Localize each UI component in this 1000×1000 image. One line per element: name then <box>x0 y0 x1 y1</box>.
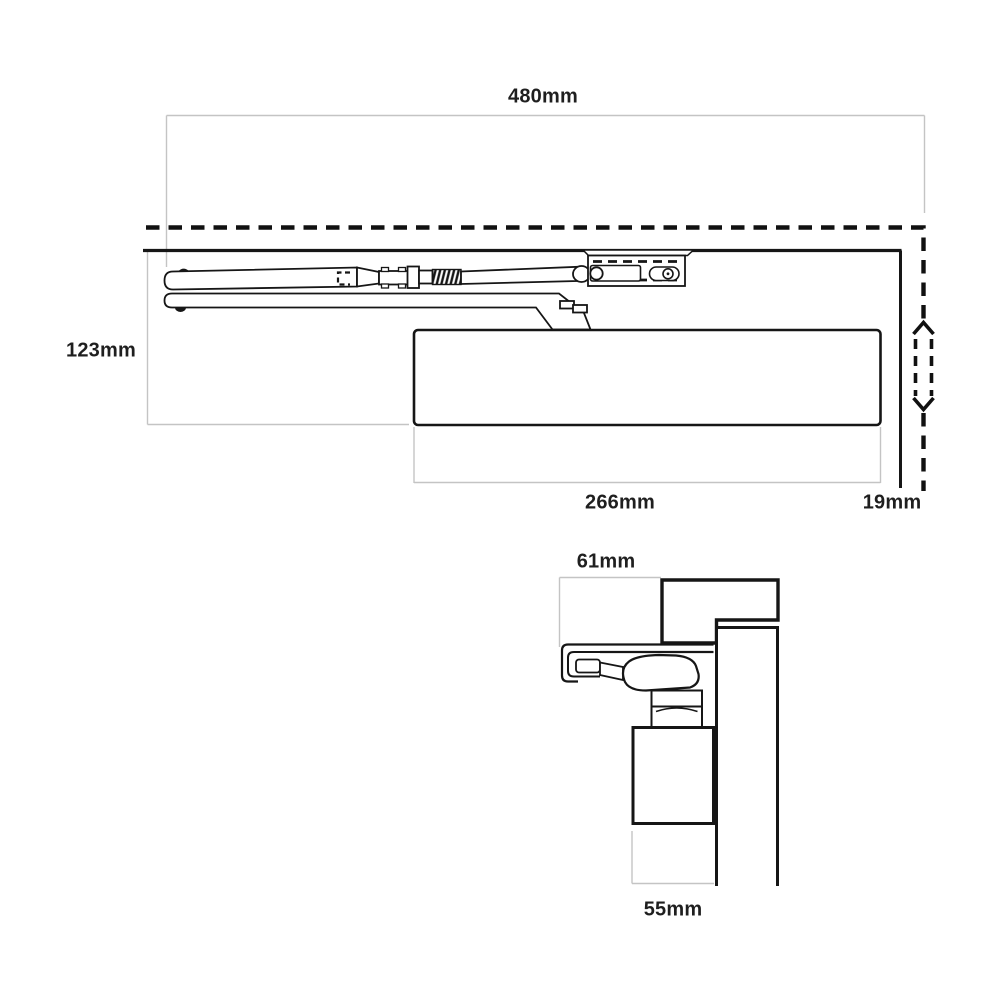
dim-overall-width-lines <box>167 116 925 268</box>
link-notch-br <box>399 284 406 288</box>
forearm-assembly <box>165 266 591 290</box>
dim-label-overall-width: 480mm <box>508 86 578 109</box>
forearm-bar <box>165 268 358 290</box>
arm-boss <box>623 655 699 691</box>
track-slider-block <box>576 660 600 673</box>
rod-collar <box>419 271 433 284</box>
forearm-rivet-bump <box>178 269 189 272</box>
screw-center-dot <box>667 272 670 275</box>
pinion-step-1 <box>560 301 574 309</box>
closer-body-side <box>633 728 714 824</box>
door-closer-dimension-drawing <box>0 0 1000 1000</box>
adjust-nut <box>408 267 420 289</box>
link-notch-tl <box>382 268 389 272</box>
hidden-slot-bracket <box>338 273 350 285</box>
diagram-canvas: 480mm 123mm 266mm 19mm 61mm 55mm <box>0 0 1000 1000</box>
arrow-up-chevron <box>914 323 934 335</box>
arm-rivet-bump <box>175 308 186 313</box>
link-notch-bl <box>382 284 389 288</box>
clevis-fork <box>357 268 379 287</box>
dim-body-length-lines <box>414 427 881 483</box>
arm-section <box>600 655 702 728</box>
main-arm-bar <box>165 294 591 330</box>
pivot-hole <box>590 267 602 279</box>
dim-label-edge-offset: 19mm <box>863 492 922 515</box>
rod <box>461 267 577 284</box>
door-leaf-section <box>717 628 778 887</box>
dim-label-height-below-frame: 123mm <box>66 340 136 363</box>
dim-label-body-length: 266mm <box>585 492 655 515</box>
dim-label-track-depth: 61mm <box>577 551 636 574</box>
mounting-bracket <box>583 250 694 286</box>
dim-label-body-depth: 55mm <box>644 899 703 922</box>
threaded-section <box>433 270 462 285</box>
front-view-drawing <box>143 116 934 492</box>
dim-body-depth-lines <box>632 831 714 884</box>
spindle-block-upper <box>652 691 703 707</box>
pinion-step-2 <box>573 305 587 313</box>
arrow-down-chevron <box>914 398 934 410</box>
closer-body-front <box>414 330 881 425</box>
main-arm <box>165 294 591 330</box>
turnbuckle-link <box>379 271 408 285</box>
dim-track-depth-lines <box>560 578 662 648</box>
adjustability-arrow <box>914 323 934 410</box>
side-view-drawing <box>560 578 779 887</box>
link-notch-tr <box>399 268 406 272</box>
